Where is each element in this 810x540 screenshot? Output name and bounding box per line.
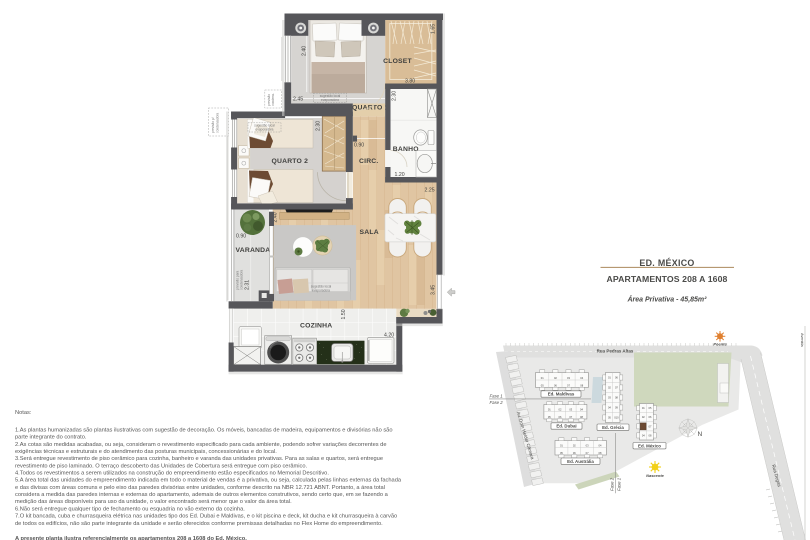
svg-text:Notas:: Notas: xyxy=(15,410,32,416)
svg-text:Fase 2: Fase 2 xyxy=(610,477,615,491)
svg-text:CLOSET: CLOSET xyxy=(383,58,412,65)
svg-text:medição das áreas disponíveis: medição das áreas disponíveis para uso d… xyxy=(15,499,292,505)
svg-text:considera a medida das paredes: considera a medida das paredes internas … xyxy=(15,492,389,498)
svg-text:QUARTO 2: QUARTO 2 xyxy=(272,158,309,165)
svg-text:010: 010 xyxy=(614,416,619,420)
svg-text:Fase 2: Fase 2 xyxy=(490,400,504,405)
svg-text:3.Será entregue revestimento d: 3.Será entregue revestimento de piso cer… xyxy=(15,456,383,462)
svg-text:Fase 1: Fase 1 xyxy=(617,477,622,491)
svg-text:1.50: 1.50 xyxy=(341,309,347,319)
svg-text:Ed. México: Ed. México xyxy=(638,443,661,448)
svg-text:1.As plantas humanizadas são p: 1.As plantas humanizadas são plantas ilu… xyxy=(15,427,393,433)
svg-text:4.Todos os revestimentos a ser: 4.Todos os revestimentos a serem utiliza… xyxy=(15,471,329,477)
svg-text:Ed. Austrália: Ed. Austrália xyxy=(567,459,594,464)
svg-text:ED. MÉXICO: ED. MÉXICO xyxy=(639,258,694,268)
svg-text:0.90: 0.90 xyxy=(236,234,246,240)
svg-text:evaporadora: evaporadora xyxy=(256,127,274,131)
svg-text:COZINHA: COZINHA xyxy=(300,323,332,330)
svg-text:2.As cotas são medidas acabada: 2.As cotas são medidas acabadas, ou seja… xyxy=(15,442,386,448)
svg-text:Área Privativa - 45,85m²: Área Privativa - 45,85m² xyxy=(627,295,708,304)
svg-text:Rua Pedras Altas: Rua Pedras Altas xyxy=(597,349,634,354)
svg-text:APARTAMENTOS 208 A 1608: APARTAMENTOS 208 A 1608 xyxy=(607,274,728,284)
svg-text:Ed. Grécia: Ed. Grécia xyxy=(602,425,624,430)
svg-text:exigências técnicas e estrutur: exigências técnicas e estruturais e do a… xyxy=(15,449,277,455)
svg-text:2.30: 2.30 xyxy=(316,121,322,131)
svg-text:3.45: 3.45 xyxy=(431,285,437,295)
svg-text:0.90: 0.90 xyxy=(354,143,364,149)
svg-text:7.O kit bancada, cuba e churra: 7.O kit bancada, cuba e churrasqueira el… xyxy=(15,514,397,520)
svg-text:condensadora: condensadora xyxy=(240,270,244,290)
svg-text:Fase 1: Fase 1 xyxy=(490,393,504,398)
svg-text:de todos os edifícios, não são: de todos os edifícios, não são parte int… xyxy=(15,521,383,527)
svg-text:e das divisas com áreas comuns: e das divisas com áreas comuns e pelo ei… xyxy=(15,485,385,491)
svg-text:5.A área total das unidades do: 5.A área total das unidades do empreendi… xyxy=(15,478,402,484)
svg-text:6.Não será entregue qualquer t: 6.Não será entregue qualquer tipo de fec… xyxy=(15,506,245,512)
svg-text:Ed. Dubai: Ed. Dubai xyxy=(556,424,576,429)
svg-text:1.20: 1.20 xyxy=(395,172,405,178)
svg-text:BANHO: BANHO xyxy=(393,146,419,153)
svg-text:1.65: 1.65 xyxy=(431,24,437,34)
svg-text:A presente planta ilustra refe: A presente planta ilustra referencialmen… xyxy=(15,536,247,540)
svg-text:evaporadora: evaporadora xyxy=(321,98,339,102)
svg-text:2.30: 2.30 xyxy=(392,91,398,101)
svg-text:condens.: condens. xyxy=(271,93,275,106)
svg-text:2.31: 2.31 xyxy=(245,280,251,290)
svg-text:revestimento de piso laminado.: revestimento de piso laminado. O terraço… xyxy=(15,463,308,469)
svg-text:Poente: Poente xyxy=(713,341,727,346)
svg-text:QUARTO 1: QUARTO 1 xyxy=(352,105,389,112)
svg-text:previsão p/: previsão p/ xyxy=(211,117,215,133)
svg-text:N: N xyxy=(698,431,703,438)
svg-text:Ed. Maldivas: Ed. Maldivas xyxy=(548,392,575,397)
svg-text:2.45: 2.45 xyxy=(293,97,303,103)
svg-text:2.40: 2.40 xyxy=(302,46,308,56)
svg-text:Avenida: Avenida xyxy=(800,333,804,348)
svg-text:condensadora: condensadora xyxy=(216,113,220,133)
svg-text:VARANDA: VARANDA xyxy=(236,247,271,254)
svg-text:parte integrante do contrato.: parte integrante do contrato. xyxy=(15,435,87,441)
svg-text:2.25: 2.25 xyxy=(425,188,435,194)
svg-text:evaporadora: evaporadora xyxy=(312,288,330,292)
svg-text:SALA: SALA xyxy=(360,229,379,236)
svg-text:CIRC.: CIRC. xyxy=(359,158,379,165)
svg-text:Nascente: Nascente xyxy=(646,473,665,478)
